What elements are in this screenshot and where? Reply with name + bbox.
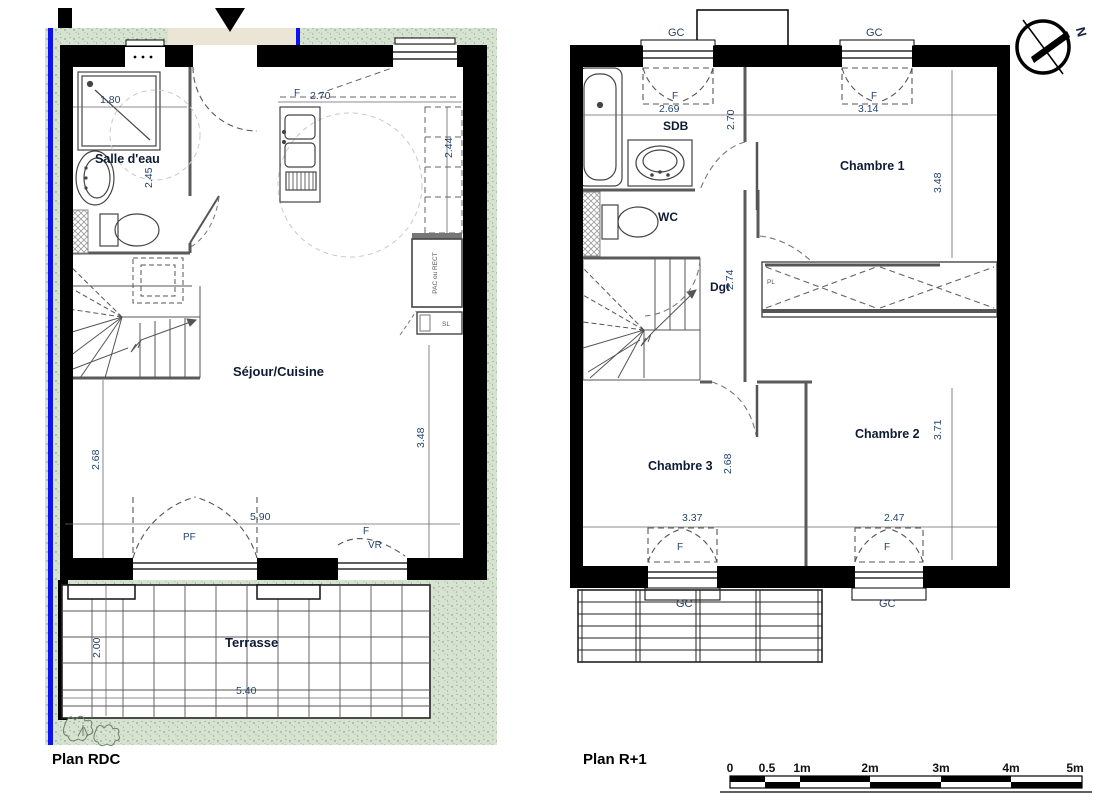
plan-rdc: PAC ou RECT SL: [45, 8, 497, 768]
guardrail-label-top-right: GC: [866, 27, 883, 39]
room-label-terrasse: Terrasse: [225, 635, 278, 650]
dim-ch1-height: 3.48: [932, 172, 944, 193]
window-label-kitchen: F: [294, 88, 300, 99]
dim-salle-depth: 2.45: [143, 167, 155, 188]
dim-right-height: 3.48: [415, 427, 427, 448]
dim-bay-width: 5.90: [250, 511, 271, 523]
north-compass-icon: N: [1017, 20, 1090, 74]
dim-kitchen-depth: 2.44: [443, 137, 455, 158]
dim-ch3-width: 3.37: [682, 512, 703, 524]
dim-kitchen-width: 2.70: [310, 90, 331, 102]
washer-label: SL: [442, 321, 450, 328]
north-label: N: [1073, 25, 1090, 38]
room-label-salle-deau: Salle d'eau: [95, 152, 160, 166]
guardrail-label-bottom-right: GC: [879, 598, 896, 610]
floorplan-sheet: PAC ou RECT SL: [0, 0, 1093, 800]
room-label-chambre1: Chambre 1: [840, 159, 905, 173]
dim-ch2-width: 2.47: [884, 512, 905, 524]
plan-r1: PL: [570, 10, 1010, 768]
window-label-sdb: F: [672, 91, 678, 102]
room-label-chambre3: Chambre 3: [648, 459, 713, 473]
dim-ch3-height: 2.68: [722, 453, 734, 474]
scale-tick-05: 0.5: [759, 761, 776, 775]
closet-label: PL: [767, 279, 775, 286]
heat-pump-unit: PAC ou RECT: [412, 233, 462, 307]
window-label-ch2: F: [884, 542, 890, 553]
dim-terrasse-depth: 2.00: [91, 637, 103, 658]
dim-sdb-window: 2.69: [659, 103, 680, 115]
plan-r1-title: Plan R+1: [583, 751, 647, 768]
scale-tick-0: 0: [727, 761, 734, 775]
entrance-path: [168, 28, 300, 47]
property-boundary-line: [48, 28, 53, 745]
scale-tick-3m: 3m: [932, 761, 949, 775]
scale-tick-4m: 4m: [1002, 761, 1019, 775]
plan-rdc-title: Plan RDC: [52, 751, 121, 768]
room-label-wc: WC: [658, 210, 678, 224]
guardrail-label-bottom-left: GC: [676, 598, 693, 610]
bay-label: PF: [183, 532, 196, 543]
dim-sdb-depth: 2.70: [725, 109, 737, 130]
scale-tick-5m: 5m: [1066, 761, 1083, 775]
dim-shower-width: 1.80: [100, 94, 121, 106]
dim-terrasse-width: 5.40: [236, 685, 257, 697]
room-label-sejour-cuisine: Séjour/Cuisine: [233, 364, 324, 379]
window-label-ch1: F: [871, 91, 877, 102]
window-label-ch3: F: [677, 542, 683, 553]
boundary-tick: [296, 28, 300, 47]
floorplan-drawing: PAC ou RECT SL: [0, 0, 1093, 800]
scale-bar-segments: [720, 776, 1092, 792]
dim-ch1-window: 3.14: [858, 103, 879, 115]
pergola-grid: [578, 590, 822, 662]
closet-placard: PL: [762, 262, 997, 317]
dim-dgt-depth: 2.74: [724, 269, 736, 290]
window-label-vr-f: F: [363, 526, 369, 537]
room-label-chambre2: Chambre 2: [855, 427, 920, 441]
guardrail-label-top-left: GC: [668, 27, 685, 39]
wall-stub: [58, 8, 72, 28]
scale-tick-1m: 1m: [793, 761, 810, 775]
shutter-label: VR: [368, 540, 382, 551]
scale-bar: 0 0.5 1m 2m 3m 4m 5m: [720, 761, 1092, 792]
dim-left-height: 2.68: [90, 449, 102, 470]
heat-pump-label: PAC ou RECT: [432, 252, 439, 293]
dim-ch2-height: 3.71: [932, 419, 944, 440]
room-label-sdb: SDB: [663, 119, 689, 133]
scale-tick-2m: 2m: [861, 761, 878, 775]
